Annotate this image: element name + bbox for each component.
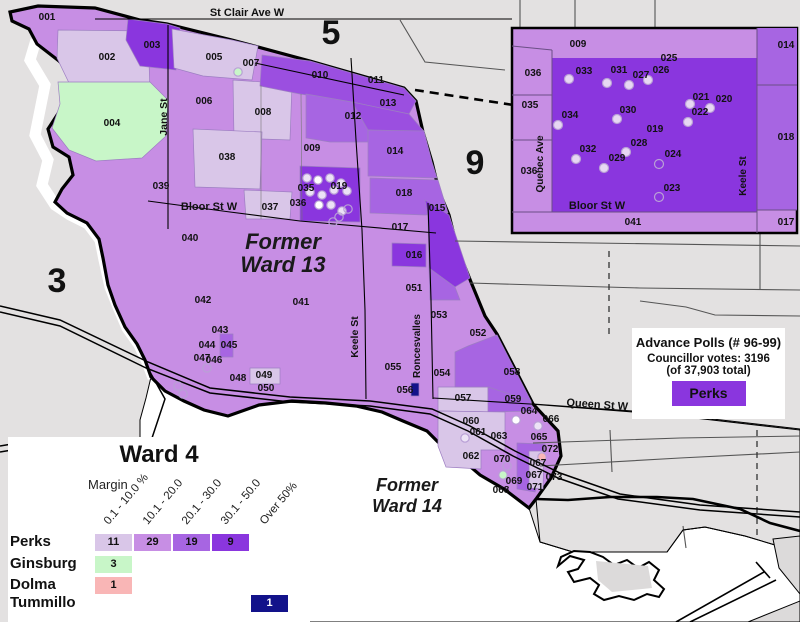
poll-label: 009 xyxy=(304,143,321,154)
poll-label: 010 xyxy=(312,70,329,81)
street-label: Roncesvalles xyxy=(412,314,423,378)
poll-label: 006 xyxy=(196,96,213,107)
poll-label: 043 xyxy=(212,325,229,336)
inset-poll-label: 026 xyxy=(653,65,670,76)
inset-street-label: Quebec Ave xyxy=(535,135,546,192)
poll-label: 019 xyxy=(331,181,348,192)
poll-label: 052 xyxy=(470,328,487,339)
poll-label: 016 xyxy=(406,250,423,261)
poll-label: 044 xyxy=(199,340,216,351)
advance-perks-swatch: Perks xyxy=(672,381,746,406)
legend-margin-column-label: Over 50% xyxy=(258,480,300,527)
poll-label: 062 xyxy=(463,451,480,462)
poll-label: 054 xyxy=(434,368,451,379)
inset-poll-label: 025 xyxy=(661,53,678,64)
poll-label: 008 xyxy=(255,107,272,118)
legend-swatch: 1 xyxy=(251,595,288,612)
poll-label: 005 xyxy=(206,52,223,63)
poll-label: 067 xyxy=(526,470,543,481)
ward-number-label: 9 xyxy=(466,144,485,182)
legend-margin-column-label: 20.1 - 30.0 xyxy=(180,477,225,527)
poll-label: 015 xyxy=(429,203,446,214)
apartment-poll-dot xyxy=(234,68,242,76)
inset-street-label: Keele St xyxy=(738,156,749,196)
poll-label: 063 xyxy=(491,431,508,442)
poll-label: 013 xyxy=(380,98,397,109)
poll-label: 051 xyxy=(406,283,423,294)
poll-label: 055 xyxy=(385,362,402,373)
inset-poll-label: 033 xyxy=(576,66,593,77)
poll-label: 073 xyxy=(546,472,563,483)
advance-total-line: (of 37,903 total) xyxy=(632,365,785,377)
apartment-poll-dot xyxy=(603,79,612,88)
apartment-poll-dot xyxy=(315,201,323,209)
former-ward-label: Ward 14 xyxy=(372,496,442,516)
inset-street-label: Bloor St W xyxy=(569,200,626,212)
inset-poll-label: 022 xyxy=(692,107,709,118)
apartment-poll-dot xyxy=(318,191,326,199)
poll-label: 070 xyxy=(494,454,511,465)
poll-label: 071 xyxy=(527,482,544,493)
street-label: Bloor St W xyxy=(181,201,238,213)
inset-poll-label: 032 xyxy=(580,144,597,155)
poll-label: 060 xyxy=(463,416,480,427)
poll-label: 059 xyxy=(505,394,522,405)
apartment-poll-dot xyxy=(684,118,693,127)
poll-label: 003 xyxy=(144,40,161,51)
legend-candidate-name: Perks xyxy=(10,533,51,551)
poll-label: 042 xyxy=(195,295,212,306)
legend-margin-label: Margin xyxy=(88,477,128,492)
street-label: Keele St xyxy=(349,316,361,358)
apartment-poll-dot xyxy=(327,201,335,209)
poll-label: 037 xyxy=(262,202,279,213)
poll-label: 056 xyxy=(397,385,414,396)
inset-poll-label: 017 xyxy=(778,217,795,228)
poll-label: 065 xyxy=(531,432,548,443)
election-map-canvas: 0010020030040050060070080090100110120130… xyxy=(0,0,800,622)
poll-label: 011 xyxy=(368,75,385,86)
legend-margin-column-label: 10.1 - 20.0 xyxy=(141,477,186,527)
poll-label: 072 xyxy=(542,444,559,455)
inset-poll-label: 023 xyxy=(664,183,681,194)
poll-label: 001 xyxy=(39,12,56,23)
poll-label: 041 xyxy=(293,297,310,308)
inset-poll-label: 020 xyxy=(716,94,733,105)
legend-swatch: 9 xyxy=(212,534,249,551)
poll-label: 014 xyxy=(387,146,404,157)
apartment-poll-dot xyxy=(512,416,520,424)
inset-poll-label: 029 xyxy=(609,153,626,164)
poll-label: 017 xyxy=(392,222,409,233)
poll-label: 057 xyxy=(455,393,472,404)
inset-poll-label: 014 xyxy=(778,40,795,51)
inset-poll-label: 030 xyxy=(620,105,637,116)
former-ward-label: Former xyxy=(245,229,322,254)
legend-swatch: 11 xyxy=(95,534,132,551)
inset-poll-label: 035 xyxy=(522,100,539,111)
poll-label: 050 xyxy=(258,383,275,394)
apartment-poll-dot xyxy=(314,176,322,184)
poll-label: 002 xyxy=(99,52,116,63)
legend-candidate-name: Ginsburg xyxy=(10,555,77,573)
poll-label: 045 xyxy=(221,340,238,351)
apartment-poll-dot xyxy=(565,75,574,84)
legend-candidate-name: Dolma xyxy=(10,576,56,594)
apartment-poll-dot xyxy=(572,155,581,164)
apartment-poll-dot xyxy=(625,81,634,90)
legend-swatch: 19 xyxy=(173,534,210,551)
street-label: St Clair Ave W xyxy=(210,7,285,19)
inset-poll-label: 036 xyxy=(525,68,542,79)
apartment-poll-dot xyxy=(554,121,563,130)
poll-label: 058 xyxy=(504,367,521,378)
poll-label: 048 xyxy=(230,373,247,384)
inset-region-018[interactable] xyxy=(757,85,797,210)
inset-poll-label: 019 xyxy=(647,124,664,135)
inset-poll-label: 027 xyxy=(633,70,650,81)
legend-swatch: 1 xyxy=(95,577,132,594)
poll-label: 061 xyxy=(470,427,487,438)
inset-poll-label: 041 xyxy=(625,217,642,228)
advance-polls-title: Advance Polls (# 96-99) xyxy=(632,335,785,350)
former-ward-label: Former xyxy=(376,475,439,495)
poll-label: 053 xyxy=(431,310,448,321)
inset-region-block[interactable] xyxy=(552,58,757,212)
legend-box: Ward 4 Margin 0.1 - 10.0 %10.1 - 20.020.… xyxy=(8,437,310,622)
poll-label: 038 xyxy=(219,152,236,163)
former-ward-label: Ward 13 xyxy=(240,252,325,277)
inset-poll-label: 018 xyxy=(778,132,795,143)
poll-label: 047 xyxy=(194,353,211,364)
apartment-poll-dot xyxy=(303,174,311,182)
inset-poll-label: 009 xyxy=(570,39,587,50)
inset-poll-label: 028 xyxy=(631,138,648,149)
inset-poll-label: 021 xyxy=(693,92,710,103)
street-label: Jane St xyxy=(158,98,170,136)
poll-label: 040 xyxy=(182,233,199,244)
inset-region-014[interactable] xyxy=(757,28,797,85)
ward-number-label: 5 xyxy=(322,14,341,52)
poll-label: 039 xyxy=(153,181,170,192)
poll-label: 035 xyxy=(298,183,315,194)
legend-candidate-name: Tummillo xyxy=(10,594,76,612)
inset-poll-label: 024 xyxy=(665,149,682,160)
poll-label: 007 xyxy=(243,58,260,69)
inset-poll-label: 034 xyxy=(562,110,579,121)
advance-votes-line: Councillor votes: 3196 xyxy=(632,353,785,365)
apartment-poll-dot xyxy=(461,434,469,442)
legend-swatch: 3 xyxy=(95,556,132,573)
poll-label: 018 xyxy=(396,188,413,199)
apartment-poll-dot xyxy=(534,422,542,430)
ward-number-label: 3 xyxy=(48,262,67,300)
poll-label: 066 xyxy=(543,414,560,425)
poll-label: 036 xyxy=(290,198,307,209)
poll-label: 067 xyxy=(530,458,547,469)
advance-polls-box: Advance Polls (# 96-99) Councillor votes… xyxy=(632,328,785,419)
poll-label: 012 xyxy=(345,111,362,122)
apartment-poll-dot xyxy=(600,164,609,173)
poll-label: 049 xyxy=(256,370,273,381)
poll-label: 064 xyxy=(521,406,538,417)
legend-swatch: 29 xyxy=(134,534,171,551)
inset-poll-label: 031 xyxy=(611,65,628,76)
poll-label: 004 xyxy=(104,118,121,129)
legend-margin-column-label: 30.1 - 50.0 xyxy=(219,477,264,527)
poll-label: 069 xyxy=(506,476,523,487)
legend-title: Ward 4 xyxy=(8,441,310,469)
